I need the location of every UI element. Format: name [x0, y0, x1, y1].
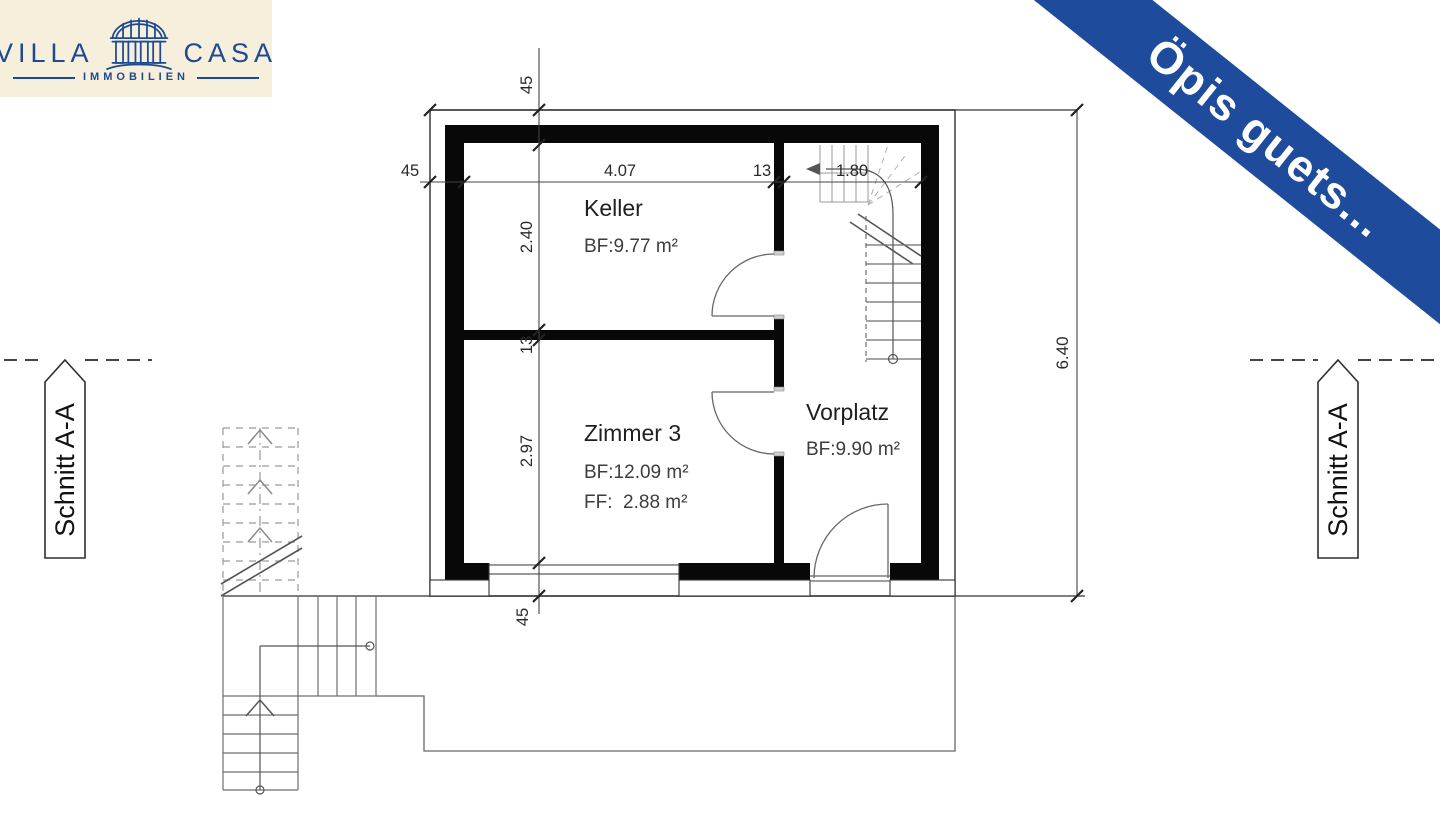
dim-partition-v: 13 [518, 336, 536, 354]
logo-rule-left [13, 77, 75, 79]
dim-wall-left: 45 [401, 162, 419, 180]
dim-wall-top: 45 [518, 76, 536, 94]
terrace-outline [376, 596, 955, 751]
room-name-zimmer3: Zimmer 3 [584, 420, 681, 446]
dim-keller-depth: 2.40 [518, 221, 536, 253]
dim-zimmer-depth: 2.97 [518, 435, 536, 467]
room-labels: Keller BF:9.77 m² Zimmer 3 BF:12.09 m² F… [584, 195, 900, 513]
winder-treads [868, 145, 920, 205]
room-area-zimmer3: BF:12.09 m² [584, 462, 689, 483]
room-area-keller: BF:9.77 m² [584, 236, 678, 257]
section-marker-right: Schnitt A-A [1318, 360, 1358, 558]
section-marker-right-label: Schnitt A-A [1323, 403, 1353, 537]
section-marker-left-label: Schnitt A-A [50, 403, 80, 537]
room-floor-area-zimmer3: FF: 2.88 m² [584, 492, 687, 513]
dim-keller-width: 4.07 [604, 162, 636, 180]
room-name-keller: Keller [584, 195, 643, 221]
dim-partition-h: 13 [753, 162, 771, 180]
logo-brand-left: VILLA [0, 40, 94, 67]
stairwell-break-line [850, 214, 921, 264]
stair-walkline [246, 642, 374, 794]
villa-casa-logo: VILLA CASA IMMOBILIEN [0, 0, 272, 97]
page: 45 4.07 13 1.80 45 2.40 13 2.97 45 6.40 … [0, 0, 1440, 816]
pavilion-icon [103, 8, 175, 70]
logo-tagline: IMMOBILIEN [83, 72, 189, 83]
stair-break-line [221, 536, 302, 596]
dim-overall-height: 6.40 [1053, 336, 1072, 369]
dimension-labels: 45 4.07 13 1.80 45 2.40 13 2.97 45 6.40 [401, 76, 1072, 626]
section-marker-left: Schnitt A-A [45, 360, 85, 558]
outer-face-lines [223, 110, 1085, 596]
exterior-staircase [221, 428, 376, 794]
entrance-door [810, 504, 890, 581]
zimmer3-door [712, 392, 774, 454]
keller-door [712, 254, 774, 316]
dim-wall-bottom: 45 [514, 608, 532, 626]
dim-vorplatz-width: 1.80 [836, 162, 868, 180]
logo-rule-right [197, 77, 259, 79]
bottom-wall-band [430, 580, 955, 596]
room-area-vorplatz: BF:9.90 m² [806, 439, 900, 460]
logo-brand-right: CASA [184, 40, 278, 67]
room-name-vorplatz: Vorplatz [806, 399, 889, 425]
window [489, 563, 679, 580]
